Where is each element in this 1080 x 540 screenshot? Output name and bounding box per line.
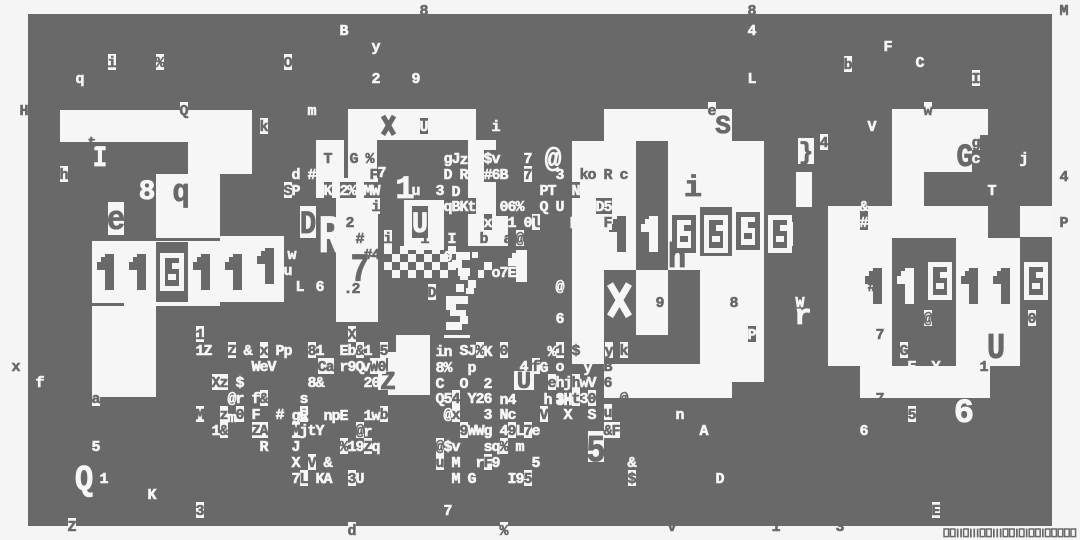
svg-text:i: i: [107, 55, 116, 72]
svg-text:U: U: [419, 119, 428, 136]
svg-text:u: u: [603, 405, 612, 422]
svg-text:G: G: [349, 151, 358, 168]
svg-text:2: 2: [371, 71, 380, 88]
svg-text:0: 0: [587, 391, 596, 408]
svg-text:7: 7: [443, 503, 452, 520]
svg-text:z: z: [219, 375, 228, 392]
svg-text:d: d: [291, 167, 300, 184]
svg-text:@: @: [555, 279, 564, 296]
svg-text:0: 0: [443, 249, 452, 266]
svg-text:m: m: [227, 410, 236, 427]
svg-text:9: 9: [655, 295, 664, 312]
svg-text:L: L: [299, 471, 308, 488]
svg-text:J: J: [291, 439, 300, 456]
svg-text:c: c: [507, 407, 516, 424]
svg-text:&: &: [259, 391, 268, 408]
svg-text:4: 4: [519, 359, 528, 376]
svg-text:u: u: [435, 455, 444, 472]
svg-text:a: a: [91, 391, 100, 408]
svg-text:2: 2: [351, 281, 360, 298]
svg-text:W: W: [371, 183, 380, 200]
svg-text:4: 4: [507, 392, 516, 409]
svg-text:3: 3: [483, 407, 492, 424]
svg-text:P: P: [1059, 215, 1068, 232]
svg-text:1: 1: [507, 215, 516, 232]
svg-text:U: U: [555, 199, 564, 216]
svg-text:5: 5: [379, 343, 388, 360]
svg-text:M: M: [451, 455, 460, 472]
svg-text:i: i: [491, 119, 500, 136]
svg-text:$: $: [571, 343, 580, 360]
svg-text:Q: Q: [539, 199, 548, 216]
svg-text:%: %: [515, 199, 525, 216]
svg-text:i: i: [684, 172, 702, 206]
svg-text:1: 1: [315, 343, 324, 360]
svg-text:b: b: [479, 231, 488, 248]
svg-text:x: x: [11, 359, 20, 376]
svg-text:L: L: [747, 71, 756, 88]
svg-text:G: G: [899, 343, 908, 360]
svg-text:D: D: [300, 206, 316, 243]
svg-text:e: e: [531, 423, 540, 440]
svg-text:o: o: [587, 167, 596, 184]
svg-text:g: g: [971, 135, 980, 152]
svg-text:7: 7: [523, 151, 532, 168]
svg-text:b: b: [843, 57, 852, 74]
svg-text:F: F: [883, 39, 892, 56]
svg-text:A: A: [259, 423, 268, 440]
svg-text:Q: Q: [179, 103, 188, 120]
svg-text:$: $: [235, 375, 244, 392]
svg-text:k: k: [259, 119, 268, 136]
svg-text:E: E: [507, 265, 516, 282]
svg-text:4: 4: [819, 135, 828, 152]
svg-text:v: v: [361, 359, 370, 376]
svg-text:&: &: [315, 375, 324, 392]
svg-text:K: K: [147, 487, 156, 504]
svg-text:4: 4: [1059, 169, 1068, 186]
svg-text:M: M: [451, 471, 460, 488]
svg-text:a: a: [325, 359, 334, 376]
svg-text:@: @: [515, 231, 524, 248]
svg-text:3: 3: [435, 183, 444, 200]
svg-text:L: L: [515, 423, 524, 440]
svg-text:m: m: [307, 103, 316, 120]
svg-text:Z: Z: [67, 519, 76, 536]
svg-text:c: c: [619, 167, 628, 184]
svg-text:5: 5: [523, 471, 532, 488]
svg-text:#: #: [275, 407, 284, 424]
svg-text:B: B: [603, 359, 612, 376]
svg-text:8: 8: [747, 3, 756, 20]
svg-text:%: %: [365, 151, 375, 168]
svg-text:S: S: [587, 407, 596, 424]
svg-text:T: T: [987, 183, 996, 200]
svg-text:&: &: [323, 455, 332, 472]
svg-text:7: 7: [291, 471, 300, 488]
svg-text:D: D: [427, 285, 436, 302]
svg-text:C: C: [915, 55, 924, 72]
svg-text:%: %: [443, 360, 453, 377]
svg-text:5: 5: [603, 199, 612, 216]
svg-text:F: F: [369, 167, 378, 184]
svg-text:y: y: [371, 39, 380, 56]
svg-text:L: L: [295, 279, 304, 296]
svg-text:w: w: [371, 408, 380, 425]
svg-text:M: M: [195, 407, 204, 424]
svg-text:i: i: [383, 231, 392, 248]
svg-text:#: #: [859, 215, 868, 232]
svg-text:q: q: [172, 176, 189, 212]
svg-text:V: V: [867, 119, 876, 136]
svg-text:1: 1: [771, 519, 780, 536]
svg-text:4: 4: [451, 391, 460, 408]
svg-text:F: F: [611, 423, 620, 440]
svg-text:t: t: [87, 135, 96, 152]
svg-text:n: n: [675, 407, 684, 424]
svg-text:O: O: [283, 55, 292, 72]
svg-text:7: 7: [377, 165, 386, 182]
svg-text:$: $: [331, 167, 340, 184]
svg-text:o: o: [555, 359, 564, 376]
svg-text:4: 4: [747, 23, 756, 40]
svg-text:X: X: [347, 327, 356, 344]
svg-text:9: 9: [515, 471, 524, 488]
svg-text:U: U: [987, 329, 1005, 370]
svg-text:1: 1: [979, 359, 988, 376]
svg-text:t: t: [467, 199, 476, 216]
svg-text:A: A: [699, 423, 708, 440]
svg-text:Y: Y: [315, 423, 324, 440]
svg-text:H: H: [563, 393, 572, 410]
svg-text:H: H: [19, 103, 28, 120]
svg-text:&: &: [243, 343, 252, 360]
svg-text:V: V: [267, 359, 276, 376]
svg-text:k: k: [619, 343, 628, 360]
svg-text:b: b: [379, 407, 388, 424]
svg-text:7: 7: [875, 391, 884, 408]
svg-text:5: 5: [531, 455, 540, 472]
svg-text:n: n: [443, 344, 452, 361]
svg-text:p: p: [467, 360, 476, 377]
svg-text:8: 8: [729, 295, 738, 312]
svg-text:I: I: [447, 231, 456, 248]
svg-text:3: 3: [579, 391, 588, 408]
svg-text:Y: Y: [931, 359, 940, 376]
svg-text:p: p: [283, 343, 292, 360]
svg-text:T: T: [323, 151, 332, 168]
svg-text:r: r: [475, 455, 484, 472]
svg-text:&: &: [627, 455, 636, 472]
svg-text:0: 0: [499, 343, 508, 360]
svg-text:N: N: [571, 183, 580, 200]
svg-text:5: 5: [315, 167, 324, 184]
svg-text:m: m: [515, 439, 524, 456]
svg-text:F: F: [251, 407, 260, 424]
svg-text:G: G: [467, 471, 476, 488]
svg-text:3: 3: [555, 167, 564, 184]
svg-text:v: v: [667, 519, 676, 536]
svg-text:9: 9: [491, 455, 500, 472]
svg-text:X: X: [291, 455, 300, 472]
svg-text:x: x: [259, 343, 268, 360]
svg-text:b: b: [347, 343, 356, 360]
svg-text:V: V: [587, 375, 596, 392]
svg-text:E: E: [931, 503, 940, 520]
svg-text:#: #: [595, 215, 604, 232]
svg-text:M: M: [1059, 3, 1068, 20]
svg-text:7: 7: [875, 327, 884, 344]
svg-text:R: R: [318, 208, 342, 269]
svg-text:5: 5: [907, 407, 916, 424]
svg-text:P: P: [291, 183, 300, 200]
svg-text:x: x: [451, 407, 460, 424]
svg-text:g: g: [483, 423, 492, 440]
svg-text:9: 9: [355, 439, 364, 456]
svg-text:q: q: [75, 71, 84, 88]
svg-text:E: E: [907, 359, 916, 376]
svg-text:A: A: [323, 471, 332, 488]
svg-text:V: V: [539, 407, 548, 424]
svg-text:h: h: [59, 167, 68, 184]
svg-text:%: %: [347, 183, 357, 200]
svg-text:T: T: [547, 183, 556, 200]
svg-text:d: d: [347, 523, 356, 540]
svg-text:R: R: [459, 167, 468, 184]
svg-text:4: 4: [499, 423, 508, 440]
svg-text:Q: Q: [75, 461, 93, 502]
svg-text:K: K: [483, 344, 492, 361]
svg-text:K: K: [323, 183, 332, 200]
svg-text:Z: Z: [203, 343, 212, 360]
svg-text:Z: Z: [227, 343, 236, 360]
svg-text:J: J: [467, 343, 476, 360]
svg-text:w: w: [923, 103, 932, 120]
svg-text:K: K: [459, 199, 468, 216]
svg-text:f: f: [251, 391, 260, 408]
svg-text:a: a: [503, 231, 512, 248]
svg-text:Z: Z: [251, 423, 260, 440]
svg-text:i: i: [371, 199, 380, 216]
svg-text:4: 4: [371, 247, 380, 264]
svg-text:7: 7: [523, 167, 532, 184]
svg-text:6: 6: [315, 279, 324, 296]
svg-text:w: w: [287, 247, 296, 264]
svg-text:#: #: [867, 279, 876, 296]
svg-text:@: @: [443, 407, 452, 424]
svg-text:5: 5: [91, 439, 100, 456]
svg-text:j: j: [1019, 151, 1028, 168]
svg-text:%: %: [155, 55, 165, 72]
svg-text:f: f: [35, 375, 44, 392]
svg-text:l: l: [531, 215, 540, 232]
svg-text:1: 1: [363, 343, 372, 360]
svg-text:h: h: [668, 239, 686, 278]
svg-text:&: &: [859, 199, 868, 216]
svg-text:0: 0: [1027, 311, 1036, 328]
svg-text:8: 8: [139, 177, 156, 208]
svg-text:P: P: [747, 327, 756, 344]
svg-text:9: 9: [411, 71, 420, 88]
svg-text:k: k: [569, 216, 578, 233]
svg-text:1: 1: [555, 343, 564, 360]
svg-text:2: 2: [345, 215, 354, 232]
svg-text:#: #: [355, 231, 364, 248]
svg-text:$: $: [627, 471, 636, 488]
svg-text:6: 6: [954, 395, 974, 433]
svg-text:u: u: [283, 263, 292, 280]
svg-text:q: q: [491, 439, 500, 456]
svg-text:1: 1: [99, 471, 108, 488]
svg-text:D: D: [443, 167, 452, 184]
svg-text:0: 0: [371, 375, 380, 392]
svg-text:3: 3: [195, 503, 204, 520]
svg-text:6: 6: [603, 375, 612, 392]
svg-text:v: v: [451, 439, 460, 456]
svg-text:V: V: [307, 455, 316, 472]
svg-text:q: q: [371, 439, 380, 456]
svg-text:u: u: [411, 183, 420, 200]
svg-text:r: r: [235, 391, 244, 408]
svg-text:}: }: [799, 140, 813, 167]
svg-text:c: c: [971, 151, 980, 168]
svg-text:D: D: [715, 471, 724, 488]
svg-text:U: U: [355, 471, 364, 488]
svg-text:F: F: [603, 215, 612, 232]
svg-text:3: 3: [835, 519, 844, 536]
svg-text:E: E: [339, 408, 348, 425]
svg-text:i: i: [420, 231, 429, 248]
svg-text:v: v: [491, 151, 500, 168]
svg-text:6: 6: [859, 423, 868, 440]
svg-text:B: B: [499, 167, 508, 184]
svg-text:B: B: [339, 23, 348, 40]
svg-text:6: 6: [483, 391, 492, 408]
svg-text:%: %: [499, 523, 509, 540]
svg-text:j: j: [563, 375, 572, 392]
svg-text:%: %: [499, 439, 509, 456]
svg-text:R: R: [259, 439, 268, 456]
svg-text:6: 6: [555, 311, 564, 328]
svg-text:8: 8: [419, 3, 428, 20]
svg-text:0: 0: [523, 215, 532, 232]
svg-text:h: h: [543, 392, 552, 409]
svg-text:q: q: [443, 199, 452, 216]
svg-text:@: @: [619, 391, 628, 408]
svg-text:1: 1: [211, 423, 220, 440]
svg-text:5: 5: [443, 391, 452, 408]
svg-text:y: y: [604, 343, 613, 360]
svg-text:W: W: [795, 295, 804, 312]
svg-text:0: 0: [235, 407, 244, 424]
svg-text:I: I: [971, 71, 980, 88]
svg-text:y: y: [583, 360, 592, 377]
svg-text:0: 0: [377, 359, 386, 376]
svg-text:s: s: [299, 391, 308, 408]
svg-text:G: G: [539, 360, 548, 377]
svg-text:e: e: [107, 201, 125, 240]
svg-text:O: O: [587, 231, 596, 248]
svg-text:S: S: [715, 111, 731, 141]
svg-text:e: e: [707, 103, 716, 120]
svg-text:R: R: [603, 167, 612, 184]
svg-text:G: G: [595, 343, 604, 360]
svg-text:1: 1: [195, 327, 204, 344]
svg-text:@: @: [923, 311, 932, 328]
